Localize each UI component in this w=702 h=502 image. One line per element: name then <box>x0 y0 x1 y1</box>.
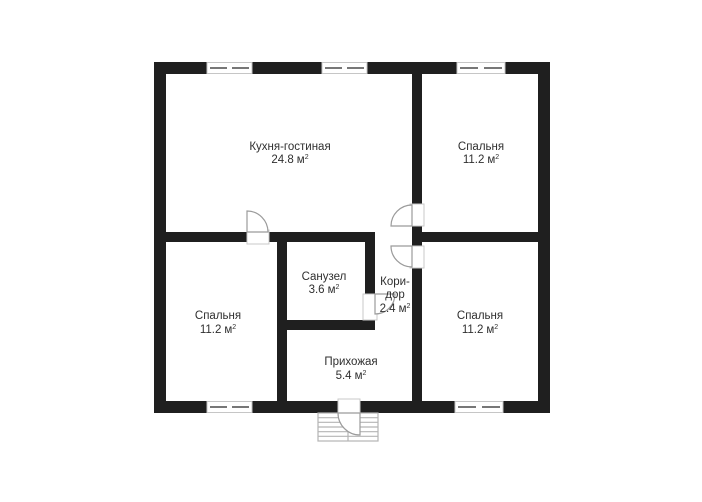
room-name-bedroom-bottom-right: Спальня <box>457 310 503 322</box>
room-labels: Кухня-гостиная 24.8м2 Спальня 11.2м2 Сан… <box>195 141 504 382</box>
window-kitchen-left <box>207 63 252 74</box>
room-name-corridor-line2: дор <box>385 289 405 301</box>
outer-wall-left <box>154 62 166 413</box>
door-bedroom-top-right <box>391 204 424 226</box>
interior-walls <box>166 74 538 401</box>
room-area-bathroom: 3.6м2 <box>309 284 340 296</box>
room-label-bedroom-bottom-right: Спальня 11.2м2 <box>457 310 503 336</box>
wall-kitchen-bathroom <box>269 232 375 242</box>
room-area-bedroom-bottom-left: 11.2м2 <box>200 324 236 336</box>
wall-corridor-right-upper <box>412 74 422 204</box>
room-name-bedroom-bottom-left: Спальня <box>195 310 241 322</box>
room-label-kitchen-living: Кухня-гостиная 24.8м2 <box>249 141 330 166</box>
window-bedroom-bottom-right <box>455 402 503 413</box>
room-area-corridor: 2.4м2 <box>380 303 411 315</box>
floor-plan: Кухня-гостиная 24.8м2 Спальня 11.2м2 Сан… <box>0 0 702 502</box>
wall-bathroom-right <box>365 242 375 294</box>
wall-kitchen-bedroom-left <box>166 232 247 242</box>
wall-bathroom-bottom <box>287 320 375 330</box>
wall-bedroom-left-hallway <box>277 242 287 401</box>
door-bedroom-bottom-left <box>247 211 269 244</box>
door-bedroom-bottom-right <box>391 246 424 268</box>
room-area-hallway: 5.4м2 <box>336 370 367 382</box>
wall-corridor-right-middle <box>412 226 422 246</box>
wall-between-right-bedrooms <box>422 232 538 242</box>
window-bedroom-top-right <box>457 63 505 74</box>
room-area-bedroom-bottom-right: 11.2м2 <box>462 324 498 336</box>
room-label-bedroom-bottom-left: Спальня 11.2м2 <box>195 310 241 336</box>
room-name-bathroom: Санузел <box>302 271 347 283</box>
room-name-kitchen-living: Кухня-гостиная <box>249 141 330 153</box>
room-name-bedroom-top-right: Спальня <box>458 141 504 153</box>
floor-plan-canvas: Кухня-гостиная 24.8м2 Спальня 11.2м2 Сан… <box>0 0 702 502</box>
room-name-hallway: Прихожая <box>324 356 377 368</box>
room-name-corridor-line1: Кори- <box>380 276 410 288</box>
room-label-hallway: Прихожая 5.4м2 <box>324 356 377 382</box>
room-label-bedroom-top-right: Спальня 11.2м2 <box>458 141 504 166</box>
wall-corridor-right-lower <box>412 268 422 401</box>
room-label-bathroom: Санузел 3.6м2 <box>302 271 347 296</box>
outer-wall-right <box>538 62 550 413</box>
window-kitchen-right <box>322 63 367 74</box>
window-bedroom-bottom-left <box>207 402 252 413</box>
room-area-kitchen-living: 24.8м2 <box>271 154 308 166</box>
room-area-bedroom-top-right: 11.2м2 <box>463 154 499 166</box>
